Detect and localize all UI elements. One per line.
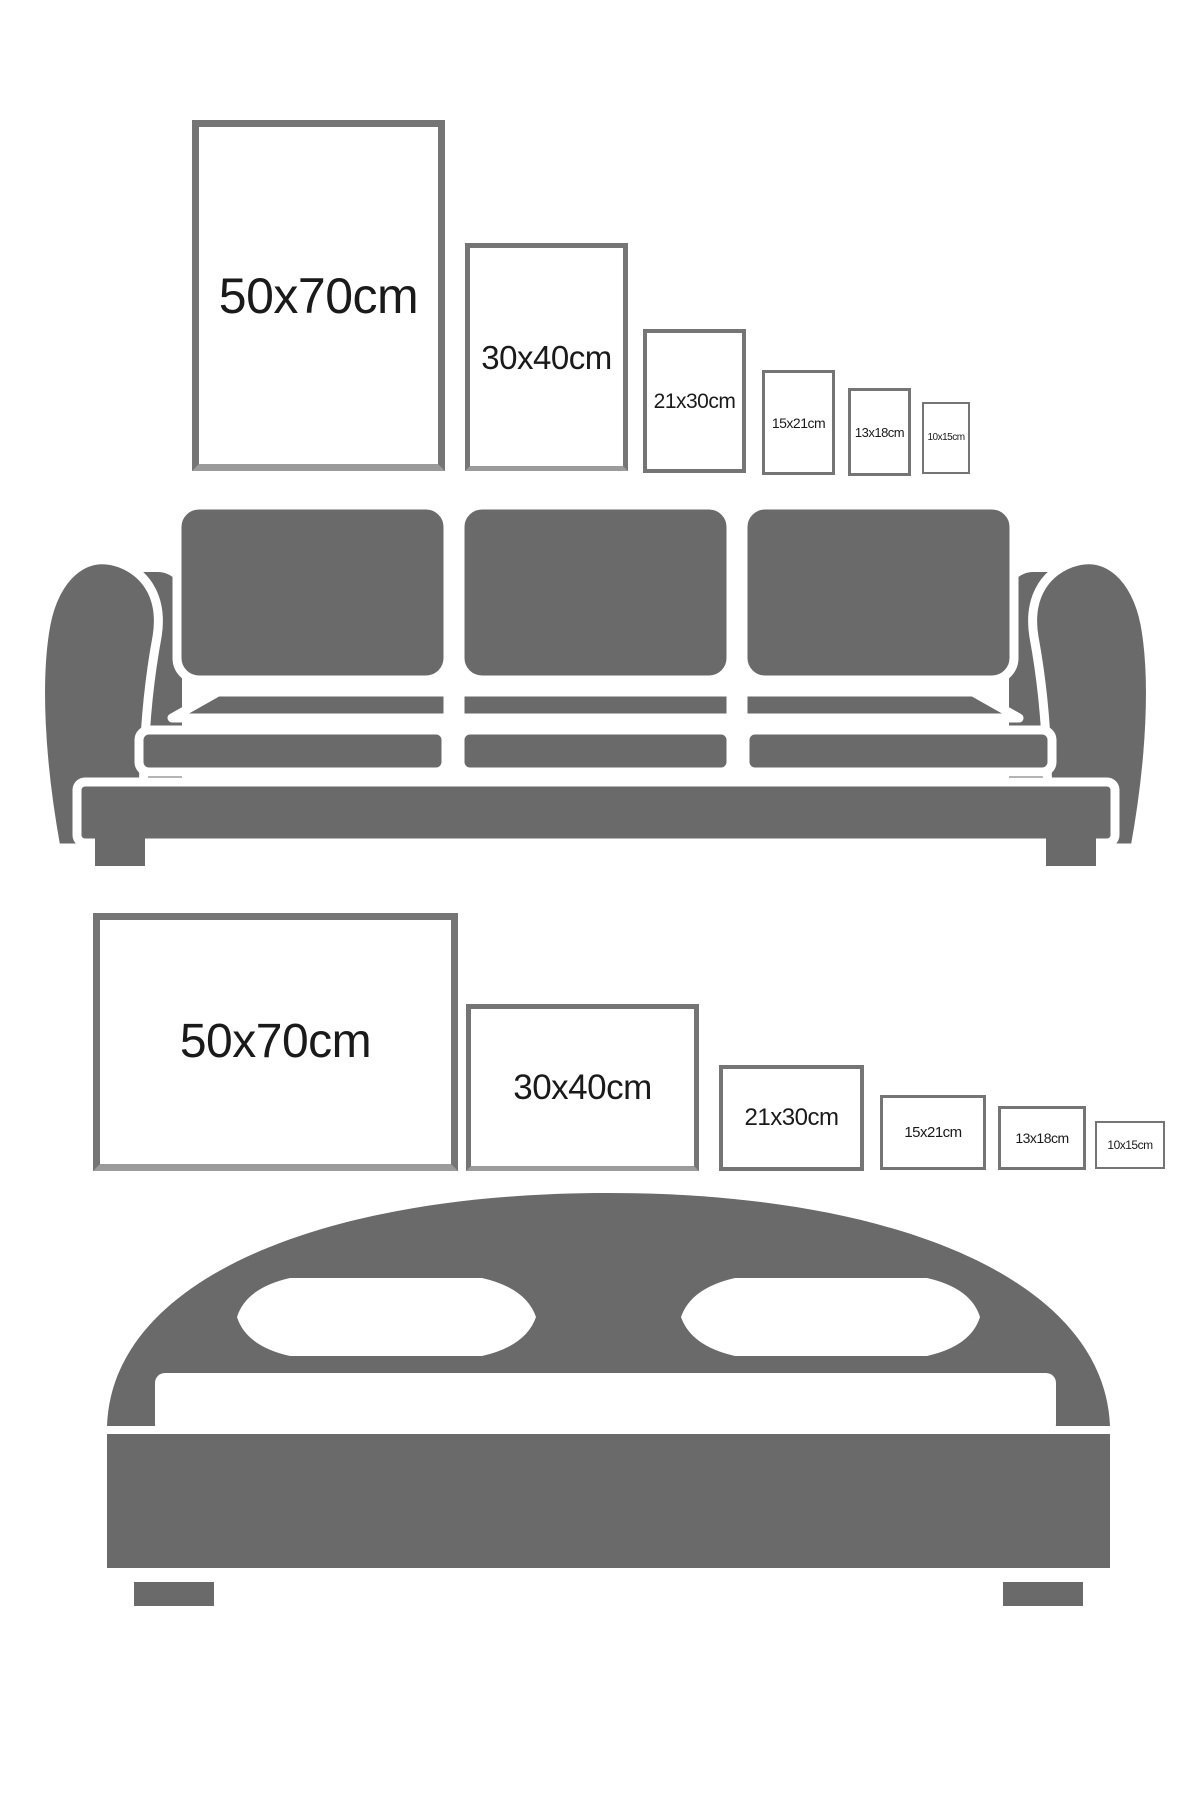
sofa-seat-deck bbox=[460, 692, 731, 718]
frame-size-label: 13x18cm bbox=[1015, 1131, 1068, 1145]
frame-50x70-portrait: 50x70cm bbox=[192, 120, 445, 471]
bed-foot bbox=[1003, 1582, 1083, 1606]
frame-size-label: 15x21cm bbox=[904, 1125, 961, 1140]
sofa-back-cushion bbox=[460, 505, 731, 680]
bed-illustration bbox=[0, 1150, 1200, 1620]
frame-size-label: 50x70cm bbox=[219, 271, 418, 321]
sofa-seat-deck bbox=[172, 692, 448, 718]
frame-size-label: 21x30cm bbox=[745, 1106, 839, 1130]
bed-pillow bbox=[681, 1278, 980, 1356]
sofa-seat-cushion bbox=[460, 730, 731, 772]
frame-size-label: 50x70cm bbox=[180, 1018, 371, 1066]
frame-size-label: 21x30cm bbox=[654, 391, 736, 412]
bed-base bbox=[107, 1434, 1110, 1568]
sofa-foot bbox=[95, 835, 145, 866]
sofa-illustration bbox=[30, 430, 1170, 870]
sofa-seat-deck bbox=[743, 692, 1019, 718]
frame-size-label: 30x40cm bbox=[513, 1070, 652, 1105]
frame-50x70-landscape: 50x70cm bbox=[93, 913, 458, 1171]
sofa-seat-cushion bbox=[139, 730, 446, 772]
bed-mattress bbox=[155, 1373, 1056, 1434]
sofa-base bbox=[77, 782, 1115, 843]
sofa-back-cushion bbox=[177, 505, 448, 680]
sofa-back-cushion bbox=[743, 505, 1014, 680]
frame-size-label: 30x40cm bbox=[481, 341, 611, 374]
frame-30x40-landscape: 30x40cm bbox=[466, 1004, 699, 1171]
bed-pillow bbox=[237, 1278, 536, 1356]
size-comparison-chart: 50x70cm30x40cm21x30cm15x21cm13x18cm10x15… bbox=[0, 0, 1200, 1800]
bed-foot bbox=[134, 1582, 214, 1606]
sofa-seat-cushion bbox=[745, 730, 1052, 772]
sofa-foot bbox=[1046, 835, 1096, 866]
frame-size-label: 15x21cm bbox=[772, 416, 825, 430]
